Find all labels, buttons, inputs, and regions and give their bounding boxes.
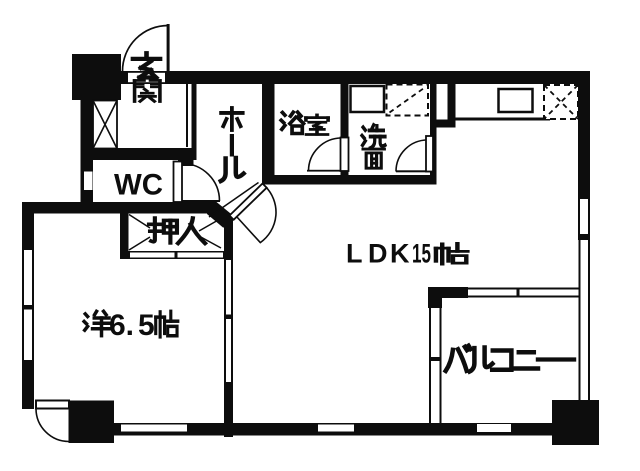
svg-text:L: L	[346, 239, 363, 269]
svg-text:6.: 6.	[109, 309, 134, 342]
svg-text:15: 15	[412, 239, 431, 269]
svg-text:WC: WC	[114, 169, 163, 202]
svg-text:K: K	[390, 239, 410, 269]
svg-text:D: D	[368, 239, 388, 269]
svg-text:5: 5	[138, 309, 155, 342]
